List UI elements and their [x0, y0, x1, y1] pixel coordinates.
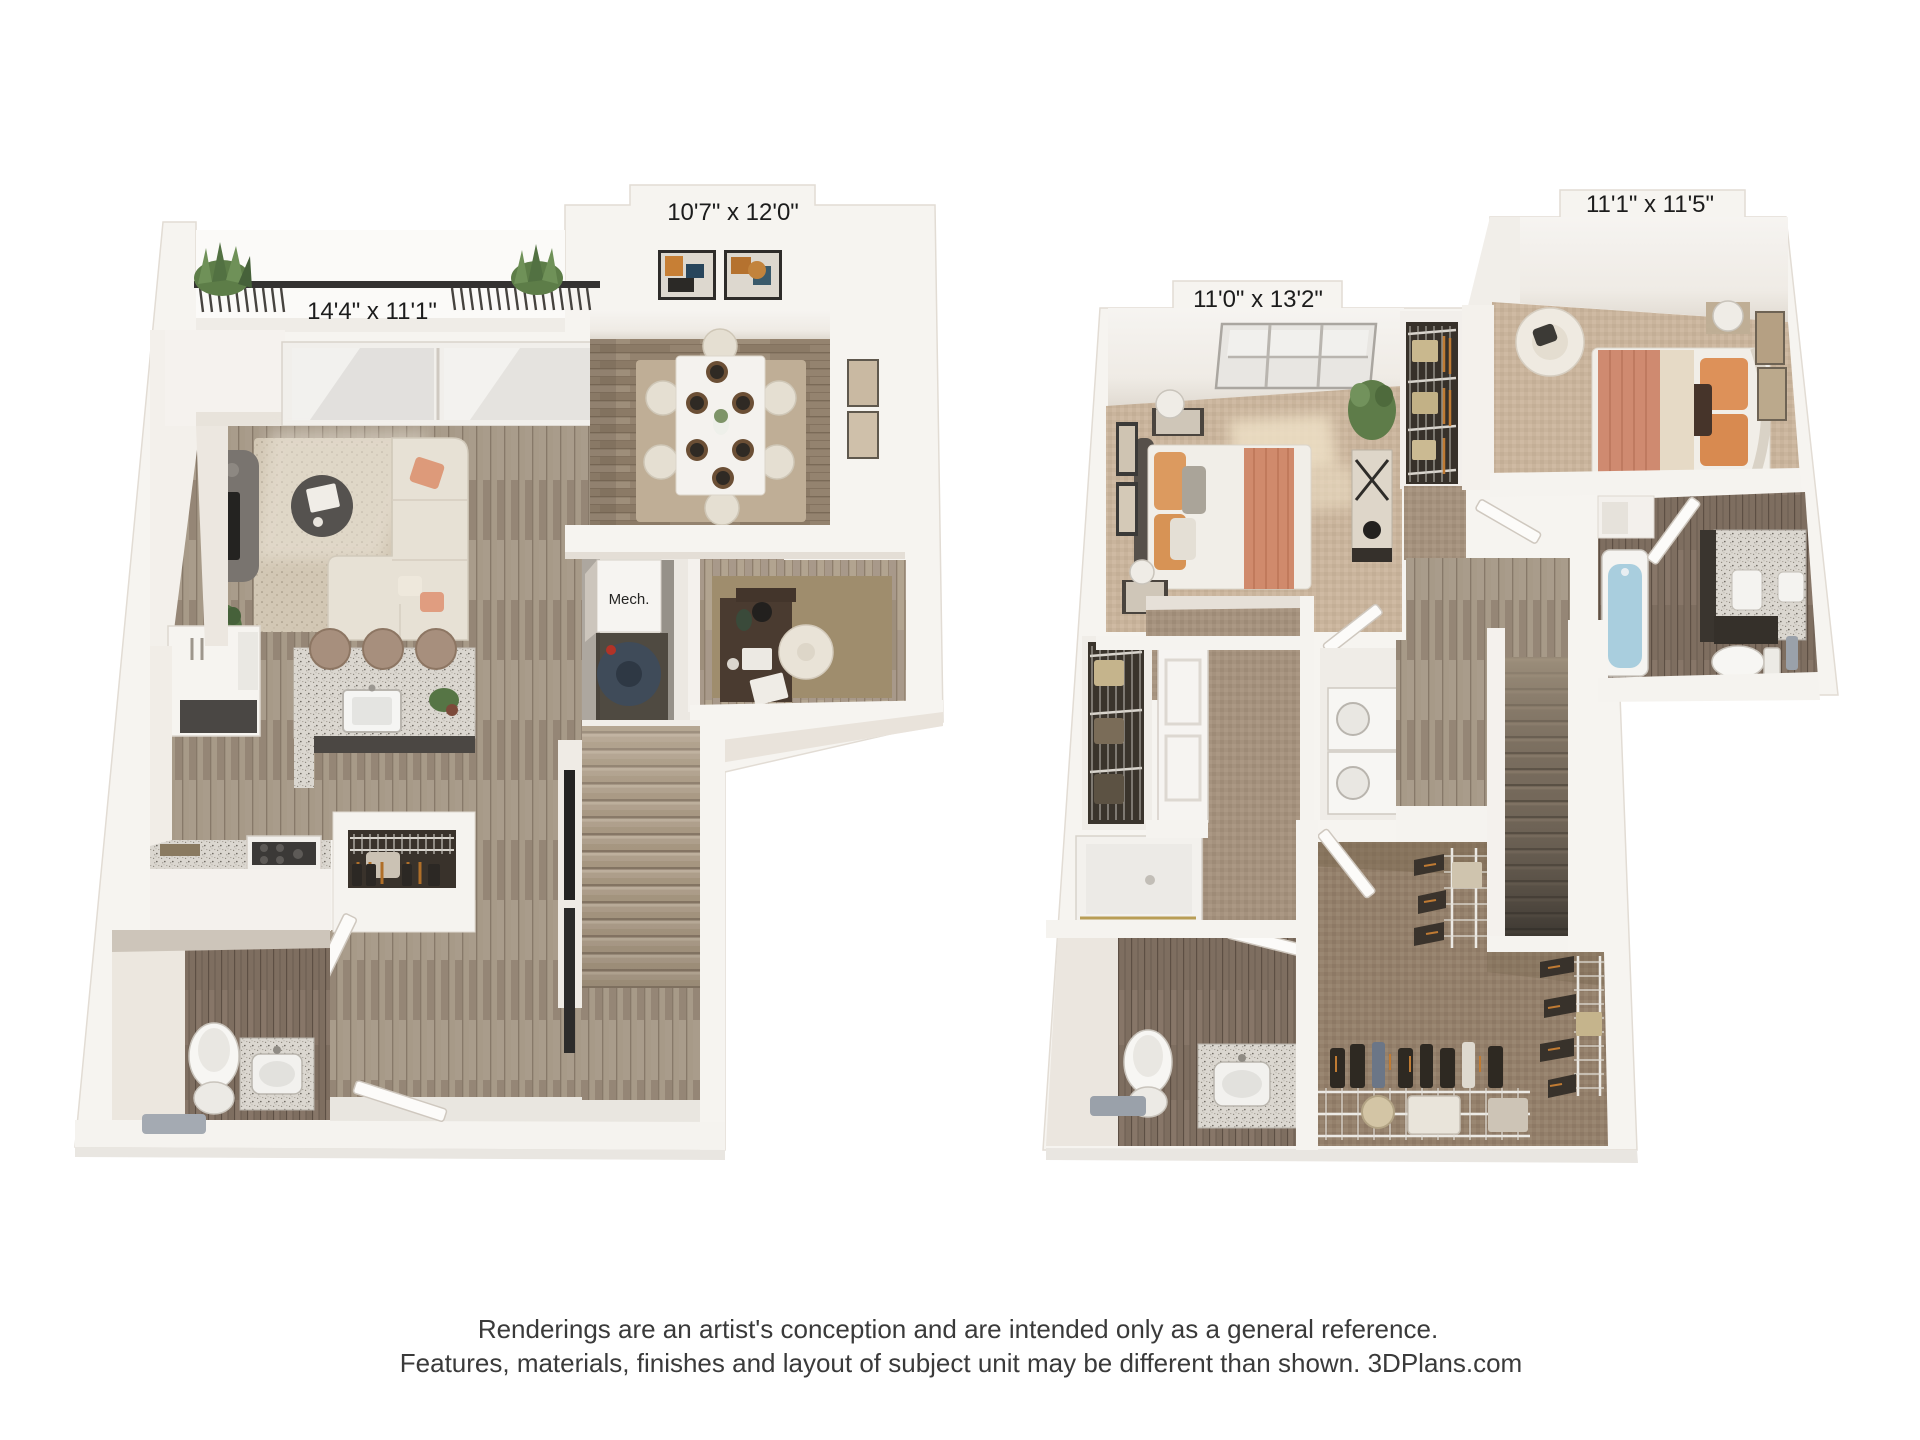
svg-text:11'1" x 11'5": 11'1" x 11'5" — [1586, 191, 1714, 218]
svg-text:Features, materials, finishes: Features, materials, finishes and layout… — [400, 1348, 1522, 1378]
svg-text:10'7" x 12'0": 10'7" x 12'0" — [667, 199, 799, 226]
svg-text:14'4" x 11'1": 14'4" x 11'1" — [307, 298, 437, 325]
svg-text:Renderings are an artist's con: Renderings are an artist's conception an… — [478, 1314, 1438, 1344]
svg-text:Mech.: Mech. — [609, 591, 650, 608]
